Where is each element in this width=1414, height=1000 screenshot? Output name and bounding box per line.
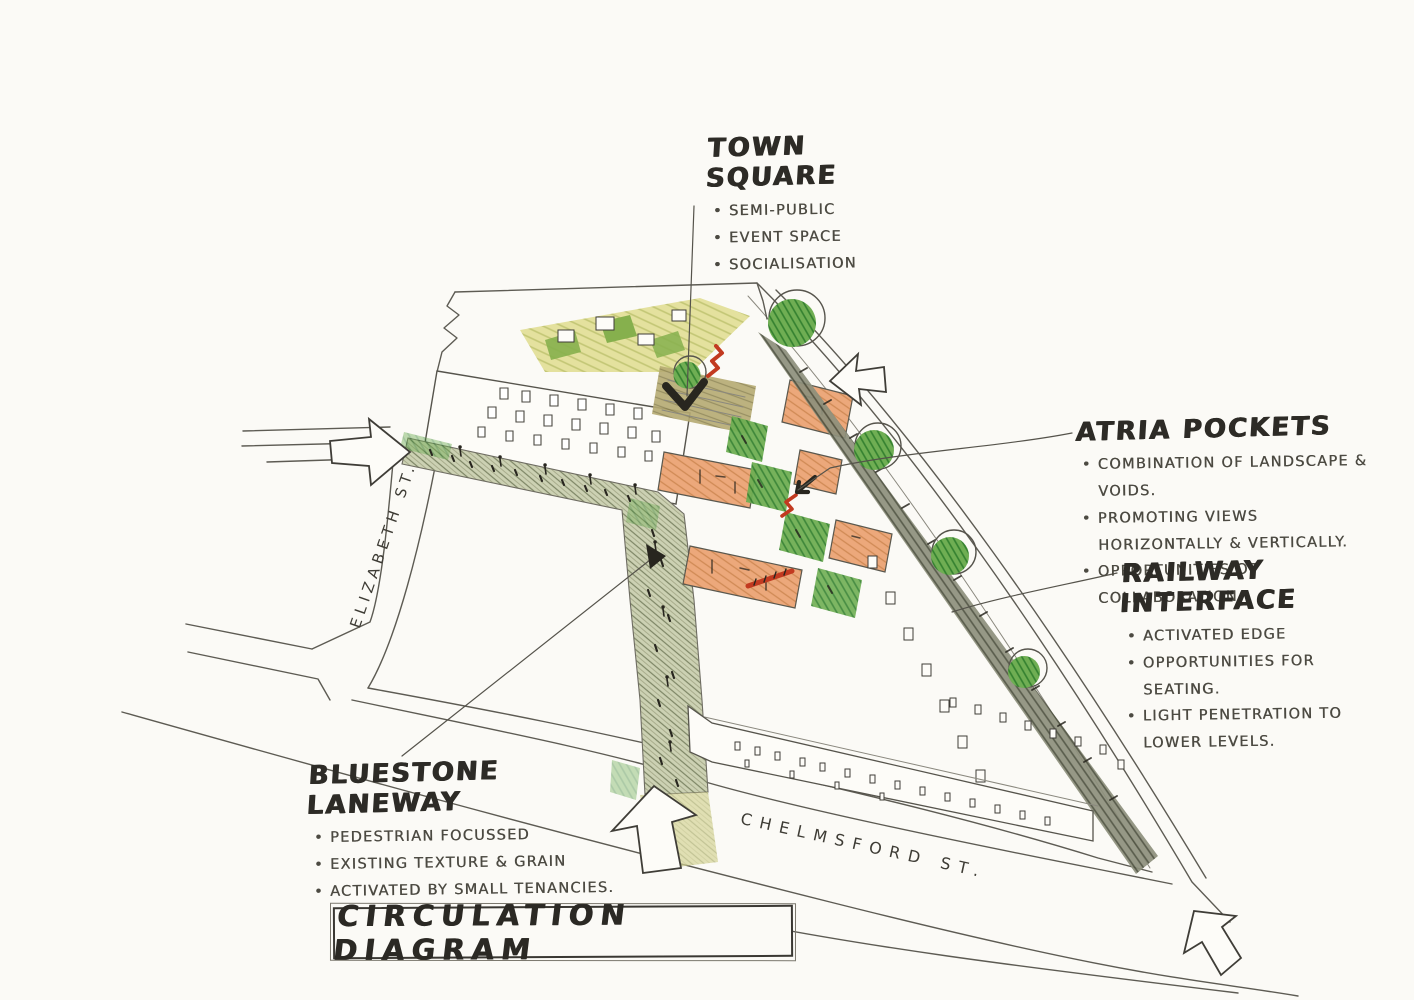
diagram-title: CIRCULATION DIAGRAM <box>331 897 795 967</box>
annotation-heading: ATRIA POCKETS <box>1075 410 1377 448</box>
annotation-bullet: EVENT SPACE <box>713 222 927 252</box>
annotation-railway-interface: RAILWAY INTERFACE ACTIVATED EDGE OPPORTU… <box>1121 556 1371 756</box>
annotation-town-square: TOWN SQUARE SEMI-PUBLIC EVENT SPACE SOCI… <box>707 131 927 277</box>
leader-bluestone-laneway <box>402 556 655 756</box>
annotation-bullets: ACTIVATED EDGE OPPORTUNITIES FOR SEATING… <box>1121 622 1371 756</box>
annotation-heading: BLUESTONE LANEWAY <box>306 753 620 821</box>
title-block: CIRCULATION DIAGRAM <box>333 905 793 959</box>
annotation-heading: RAILWAY INTERFACE <box>1119 553 1373 620</box>
atrium-pocket <box>726 416 768 462</box>
orange-building <box>829 520 892 572</box>
annotation-bluestone-laneway: BLUESTONE LANEWAY PEDESTRIAN FOCUSSED EX… <box>308 757 618 903</box>
annotation-bullet: PEDESTRIAN FOCUSSED <box>314 821 618 852</box>
annotation-heading: TOWN SQUARE <box>705 128 929 194</box>
annotation-bullets: PEDESTRIAN FOCUSSED EXISTING TEXTURE & G… <box>308 823 618 903</box>
atrium-pocket <box>811 568 862 618</box>
atrium-pocket <box>746 462 792 512</box>
annotation-bullet: SOCIALISATION <box>713 249 927 279</box>
north-building-jagged-end <box>437 292 459 372</box>
atrium-pocket <box>779 512 830 562</box>
annotation-bullet: SEMI-PUBLIC <box>713 196 927 226</box>
orange-building <box>683 546 802 608</box>
annotation-bullet: OPPORTUNITIES FOR SEATING. <box>1127 647 1372 704</box>
street-line <box>243 427 390 431</box>
circulation-diagram-sheet: TOWN SQUARE SEMI-PUBLIC EVENT SPACE SOCI… <box>0 0 1414 1000</box>
annotation-bullets: SEMI-PUBLIC EVENT SPACE SOCIALISATION <box>707 197 927 277</box>
annotation-bullet: ACTIVATED EDGE <box>1127 620 1371 650</box>
entry-arrow-railway <box>1184 911 1241 975</box>
annotation-bullet: EXISTING TEXTURE & GRAIN <box>314 848 618 879</box>
annotation-bullet: LIGHT PENETRATION TO LOWER LEVELS. <box>1127 701 1372 758</box>
annotation-bullet: PROMOTING VIEWS HORIZONTALLY & VERTICALL… <box>1082 502 1377 560</box>
annotation-bullet: COMBINATION OF LANDSCAPE & VOIDS. <box>1082 448 1377 506</box>
rooftop-structure <box>558 330 574 342</box>
